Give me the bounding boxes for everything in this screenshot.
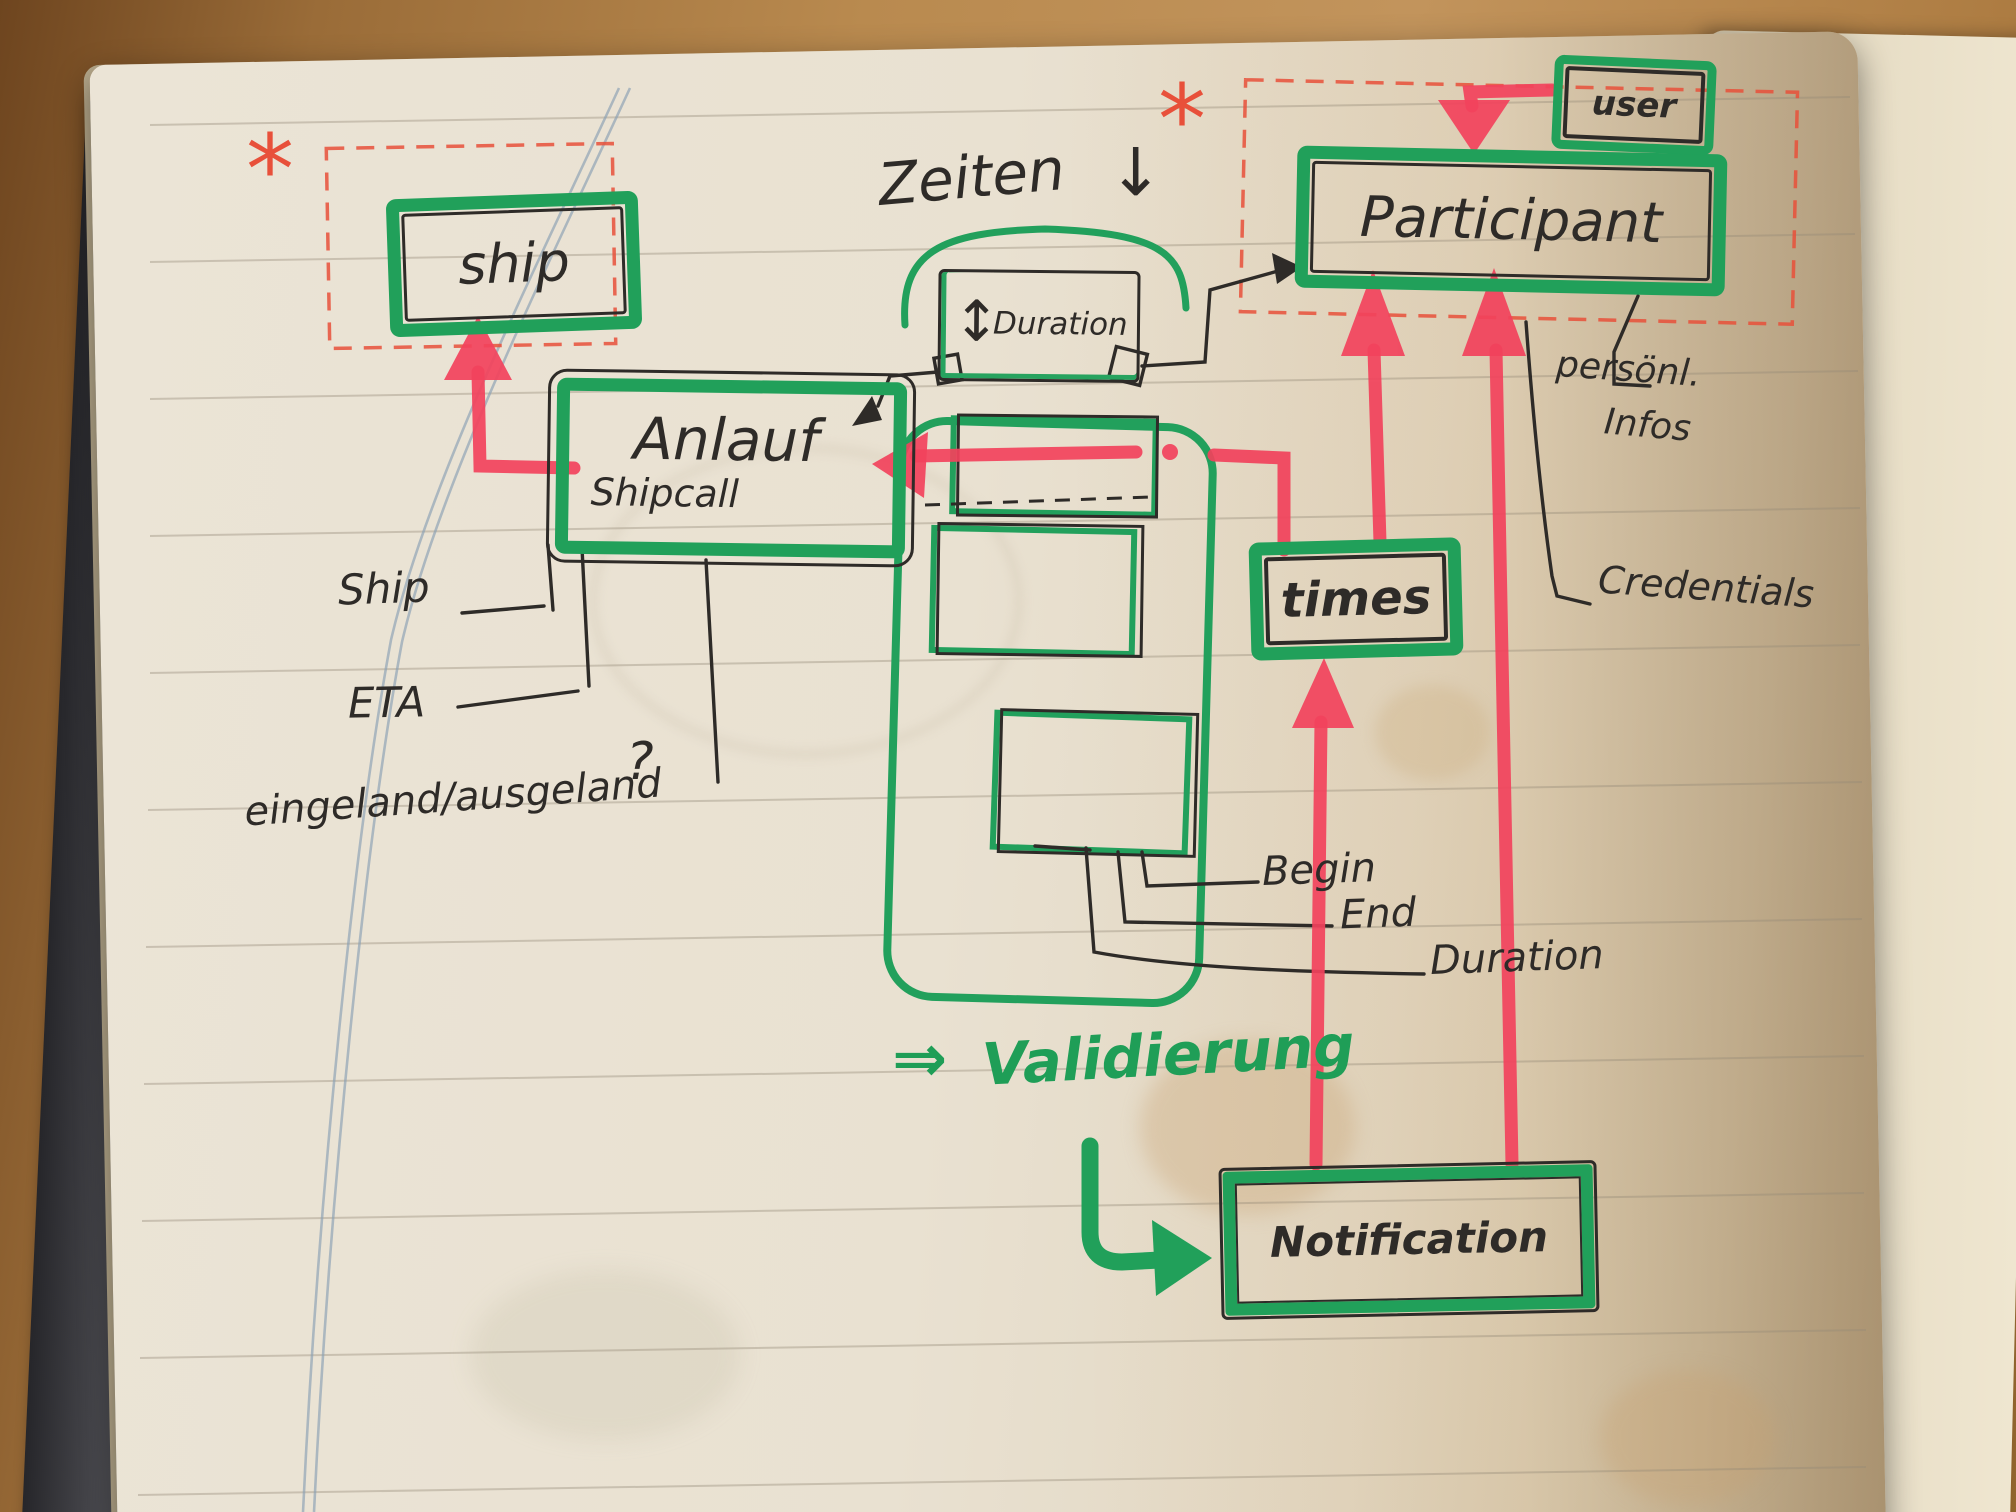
times-box: times — [1248, 537, 1463, 661]
user-box: user — [1551, 55, 1717, 156]
duration-box-label: Duration — [993, 309, 1128, 341]
record-box-3 — [993, 710, 1198, 857]
duration-attribute-label: Duration — [1429, 935, 1604, 981]
validierung-arrow-icon: ⇒ — [892, 1026, 947, 1092]
zeiten-label: Zeiten — [876, 140, 1067, 214]
participant-box: Participant — [1295, 146, 1728, 297]
end-attribute-label: End — [1339, 893, 1416, 936]
participant-box-label: Participant — [1359, 190, 1662, 252]
green-arrowhead — [1152, 1220, 1212, 1296]
question-mark: ? — [626, 736, 654, 788]
anlauf-label: Anlauf — [633, 410, 819, 471]
ship-box-label: ship — [457, 235, 570, 293]
personal-infos-line1: persönl. — [1555, 347, 1702, 393]
zeiten-down-arrow-icon: ↓ — [1108, 140, 1163, 206]
eta-attribute-label: ETA — [348, 681, 426, 724]
validierung-label: Validierung — [981, 1016, 1356, 1093]
times-box-label: times — [1280, 573, 1432, 625]
green-elbow-arrow — [1090, 1146, 1160, 1262]
asterisk-ship-icon: * — [246, 122, 294, 218]
notification-box-label: Notification — [1270, 1216, 1549, 1264]
duration-box: ↕ Duration — [937, 269, 1140, 383]
asterisk-participant-icon: * — [1158, 72, 1206, 168]
user-box-label: user — [1591, 86, 1677, 124]
arrow-times-to-anlauf-b — [916, 452, 1136, 456]
arrow-times-to-anlauf-a — [1214, 455, 1284, 550]
notification-box: Notification — [1218, 1160, 1599, 1320]
anlauf-shipcall-box: Anlauf Shipcall — [555, 378, 907, 559]
arrow-notification-to-times — [1316, 722, 1321, 1164]
arrow-times-to-participant — [1374, 350, 1380, 542]
personal-infos-line2: Infos — [1603, 404, 1693, 447]
begin-attribute-label: Begin — [1261, 848, 1376, 892]
record-box-2 — [932, 524, 1143, 657]
arrow-notification-to-participant — [1496, 350, 1512, 1164]
ship-attribute-label: Ship — [337, 566, 430, 611]
ship-box: ship — [386, 191, 643, 338]
notebook-photo: { "colors": { "marker_green": "#1f9e57",… — [0, 0, 2016, 1512]
shipcall-label: Shipcall — [590, 473, 739, 513]
